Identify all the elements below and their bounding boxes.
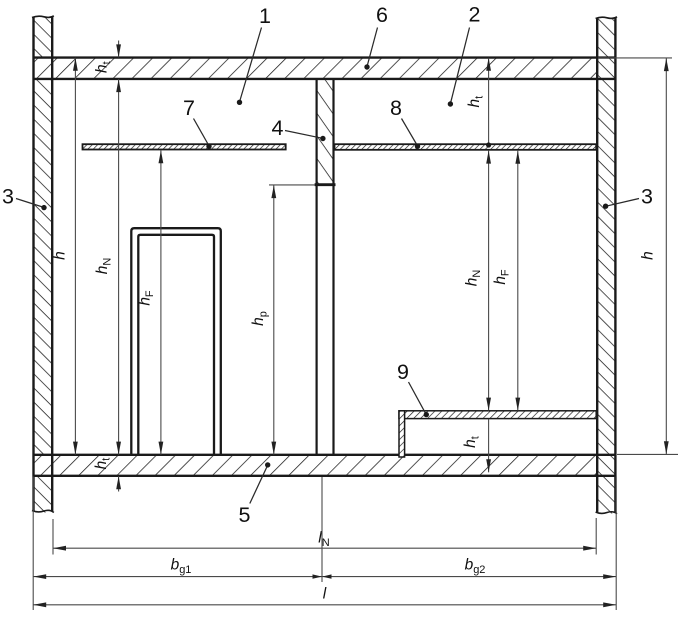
svg-text:6: 6 [376,3,388,27]
svg-text:2: 2 [469,3,481,27]
svg-text:h: h [52,251,69,260]
svg-text:7: 7 [183,96,195,120]
svg-text:4: 4 [272,116,284,140]
svg-text:8: 8 [390,96,402,120]
svg-text:9: 9 [397,360,409,384]
svg-text:3: 3 [641,185,653,209]
svg-text:l: l [323,586,327,603]
svg-text:1: 1 [259,4,271,28]
svg-text:5: 5 [239,503,251,527]
svg-text:h: h [640,251,657,260]
svg-text:3: 3 [2,185,14,209]
